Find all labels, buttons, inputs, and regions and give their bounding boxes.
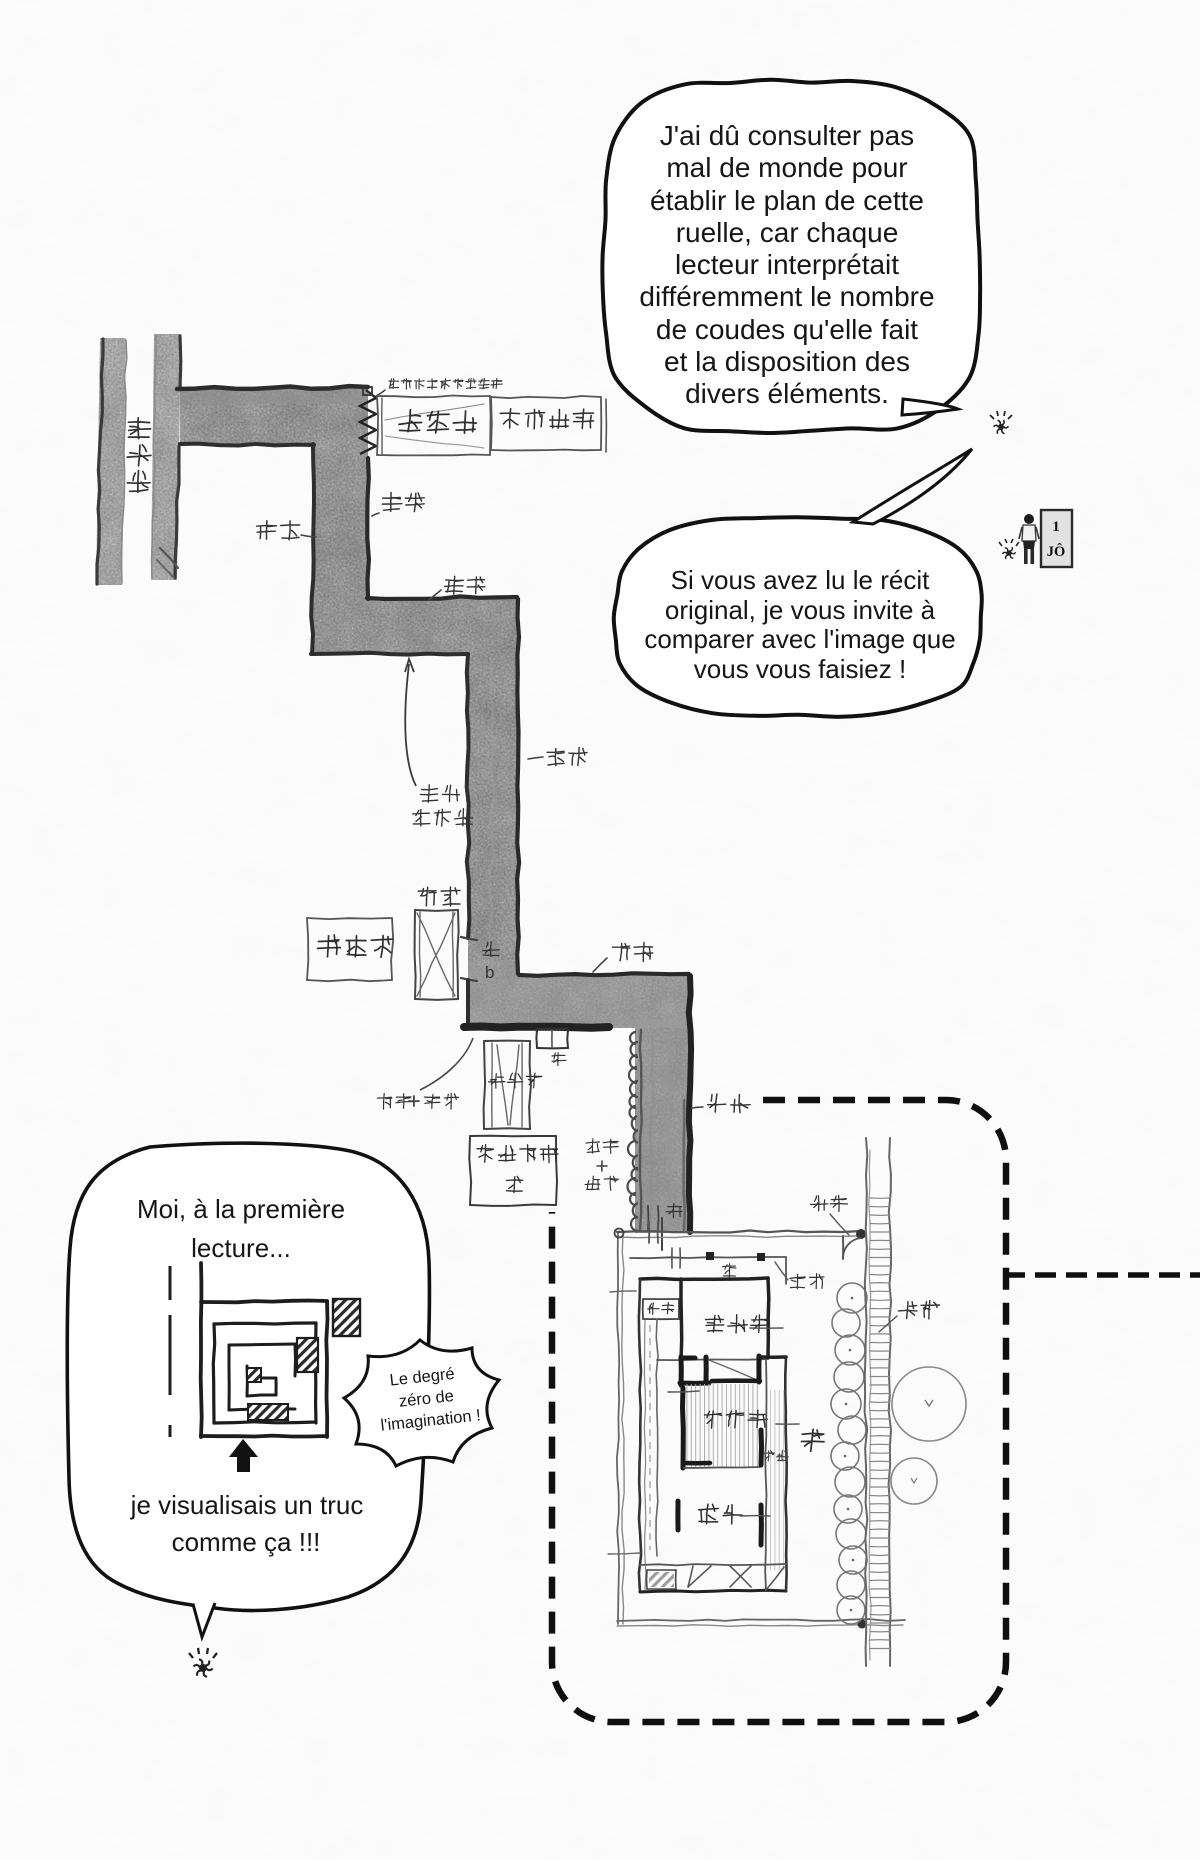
svg-text:vous vous faisiez !: vous vous faisiez ! bbox=[694, 654, 906, 684]
svg-text:J'ai dû consulter pas: J'ai dû consulter pas bbox=[660, 120, 914, 151]
svg-text:Si vous avez lu le récit: Si vous avez lu le récit bbox=[671, 565, 930, 595]
svg-text:de coudes qu'elle fait: de coudes qu'elle fait bbox=[656, 314, 918, 345]
svg-text:comparer avec l'image que: comparer avec l'image que bbox=[644, 624, 955, 654]
svg-text:établir le plan de cette: établir le plan de cette bbox=[650, 185, 924, 216]
svg-text:ruelle, car chaque: ruelle, car chaque bbox=[676, 217, 899, 248]
svg-text:JÔ: JÔ bbox=[1047, 543, 1066, 560]
svg-text:Moi, à la première: Moi, à la première bbox=[137, 1194, 345, 1224]
svg-text:je visualisais un truc: je visualisais un truc bbox=[130, 1490, 364, 1520]
svg-text:divers éléments.: divers éléments. bbox=[685, 378, 889, 409]
svg-text:b: b bbox=[485, 963, 494, 982]
svg-text:original, je vous invite à: original, je vous invite à bbox=[665, 595, 936, 625]
svg-text:différemment le nombre: différemment le nombre bbox=[639, 281, 934, 312]
svg-text:et la disposition des: et la disposition des bbox=[664, 346, 910, 377]
svg-text:mal de monde pour: mal de monde pour bbox=[666, 152, 907, 183]
svg-text:1: 1 bbox=[1052, 519, 1060, 535]
svg-text:lecture...: lecture... bbox=[191, 1233, 291, 1263]
svg-text:comme ça !!!: comme ça !!! bbox=[172, 1527, 321, 1557]
svg-text:lecteur interprétait: lecteur interprétait bbox=[675, 249, 899, 280]
